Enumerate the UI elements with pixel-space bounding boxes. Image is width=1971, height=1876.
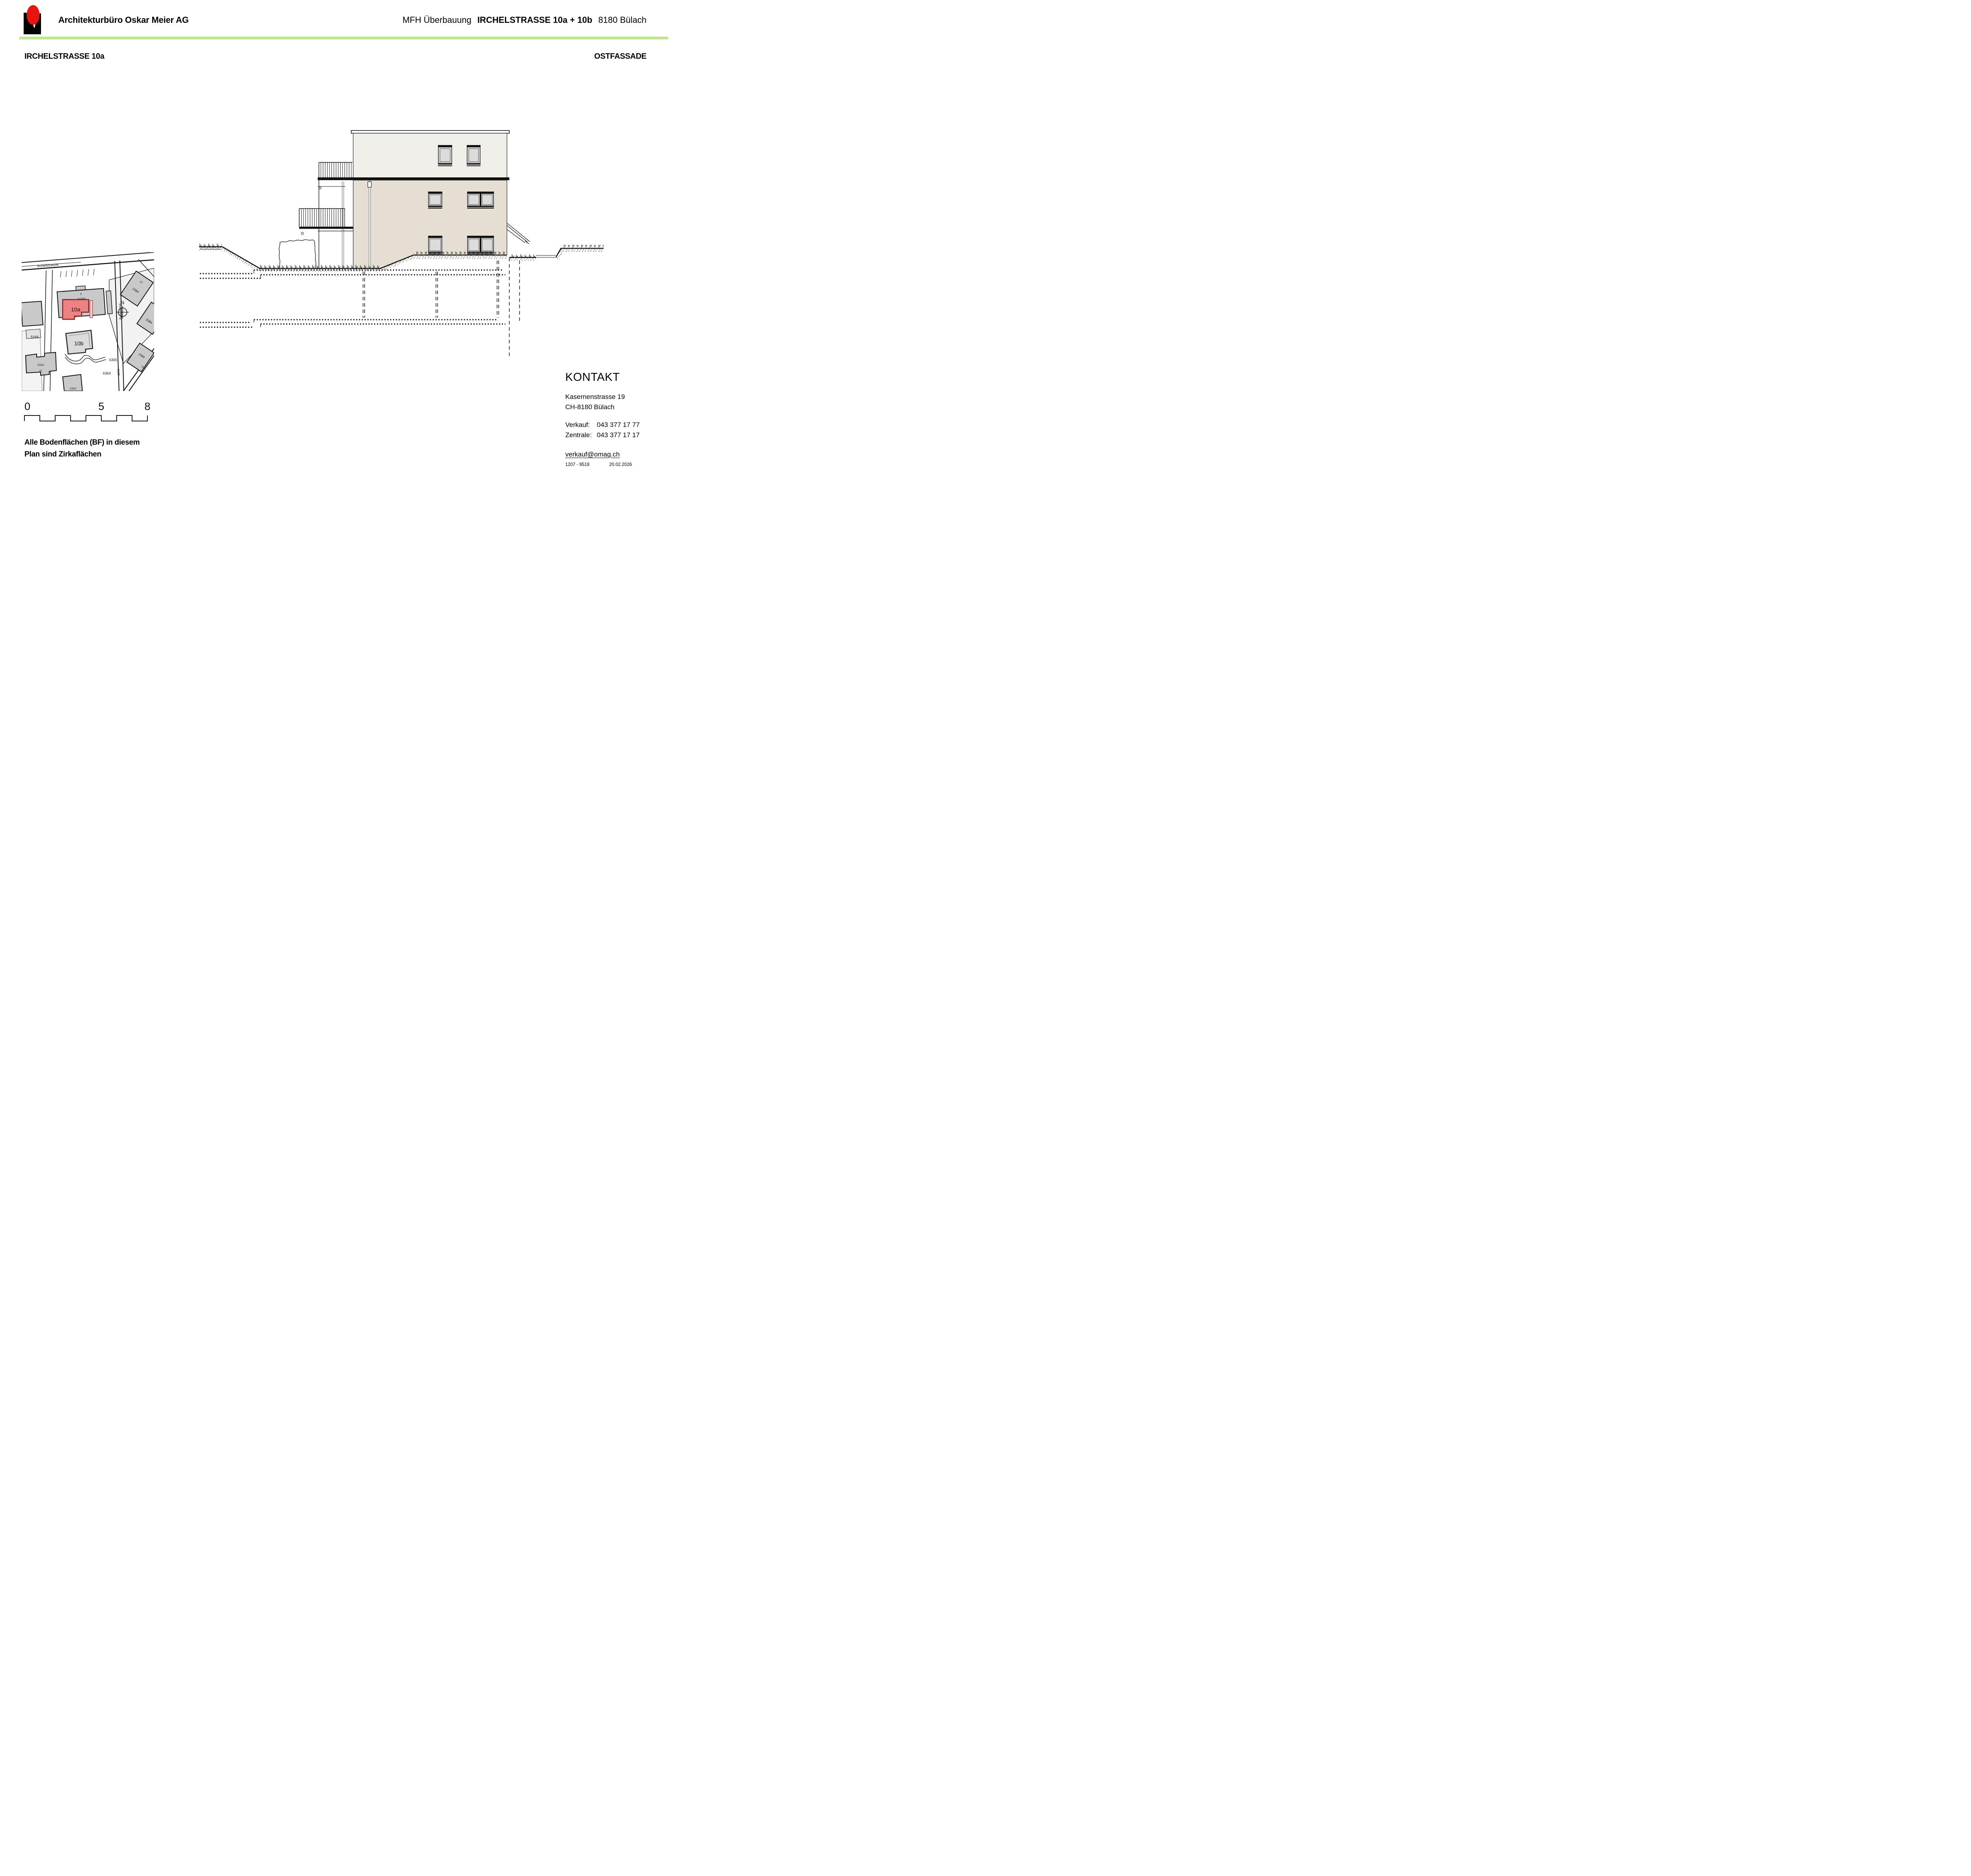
footpath	[65, 354, 106, 364]
scale-tick-8: 8	[144, 401, 150, 412]
parcel-label-37: 37	[39, 370, 42, 373]
parcel-label-5132: 5132	[117, 369, 121, 376]
sales-label: Verkauf:	[565, 420, 597, 430]
attic-window-left	[438, 145, 452, 166]
building-label-10b: 10b	[74, 340, 84, 347]
project-name: IRCHELSTRASSE 10a + 10b	[477, 15, 592, 25]
contact-email-link[interactable]: verkauf@omag.ch	[565, 451, 620, 458]
scale-tick-5: 5	[98, 401, 104, 412]
site-plan: Irchelstrasse Irchelweg 8 2160	[22, 252, 154, 391]
attic-terrace-railing	[319, 162, 352, 177]
scale-tick-0: 0	[24, 401, 30, 412]
lower-window-double	[467, 236, 494, 254]
parcel-label-6365: 6365	[109, 358, 117, 362]
balcony-drain-spout	[301, 232, 304, 235]
attic-window-right	[467, 145, 481, 166]
compass-n-label: N	[121, 300, 125, 306]
roof-slab	[318, 177, 509, 180]
hedge	[279, 240, 316, 268]
contact-address-street: Kasernenstrasse 19	[565, 392, 668, 402]
building-label-10a: 10a	[71, 306, 80, 313]
parking-ticks	[60, 269, 94, 278]
sales-phone: 043 377 17 77	[597, 421, 640, 428]
building-10a-highlight: 10a	[63, 300, 93, 319]
underground-slab-lines	[200, 270, 505, 327]
building-10b: 10b	[66, 330, 93, 354]
underground-wall-lines	[363, 258, 520, 357]
central-phone: 043 377 17 17	[597, 431, 640, 439]
project-title: MFH Überbauung IRCHELSTRASSE 10a + 10b 8…	[399, 15, 646, 25]
sheet-view-label: OSTFASSADE	[594, 52, 646, 61]
contact-address-city: CH-8180 Bülach	[565, 402, 668, 412]
company-name: Architekturbüro Oskar Meier AG	[58, 15, 189, 25]
parcel-label-2310: 2310	[70, 387, 76, 390]
plan-page: Architekturbüro Oskar Meier AG MFH Überb…	[0, 0, 668, 469]
doc-meta-row: 1207 - 951820.02.2026	[565, 462, 668, 467]
contact-central-row: Zentrale:043 377 17 17	[565, 430, 668, 440]
attic-storey	[351, 130, 509, 179]
lower-window-narrow	[428, 236, 442, 254]
project-prefix: MFH Überbauung	[402, 15, 471, 25]
doc-number: 1207 - 9518	[565, 462, 589, 467]
scale-bar: 0 5 8	[23, 401, 157, 426]
roof-drain-spout	[319, 187, 321, 189]
parcel-label-2314: 2314	[37, 363, 44, 367]
upper-window-narrow	[428, 192, 442, 209]
project-city: 8180 Bülach	[598, 15, 646, 25]
contact-title: KONTAKT	[565, 371, 668, 384]
company-logo-icon	[24, 4, 52, 35]
header-divider	[19, 37, 668, 39]
area-note-line1: Alle Bodenflächen (BF) in diesem	[24, 437, 140, 449]
building-2314: 2314 37	[26, 352, 56, 375]
entrance-canopy	[507, 223, 530, 244]
balcony	[299, 209, 353, 235]
east-facade-elevation	[181, 126, 615, 371]
sheet-building-label: IRCHELSTRASSE 10a	[24, 52, 104, 61]
parcel-label-6364: 6364	[103, 371, 111, 375]
area-note-line2: Plan sind Zirkaflächen	[24, 449, 140, 460]
central-label: Zentrale:	[565, 430, 597, 440]
building-2310: 2310	[63, 374, 82, 391]
area-note: Alle Bodenflächen (BF) in diesem Plan si…	[24, 437, 140, 460]
upper-window-double	[467, 192, 494, 209]
doc-date: 20.02.2026	[609, 462, 632, 467]
parcel-label-5166: 5166	[31, 335, 39, 339]
contact-sales-row: Verkauf:043 377 17 77	[565, 420, 668, 430]
scale-bar-line	[24, 415, 147, 421]
contact-block: KONTAKT Kasernenstrasse 19 CH-8180 Bülac…	[565, 371, 668, 467]
